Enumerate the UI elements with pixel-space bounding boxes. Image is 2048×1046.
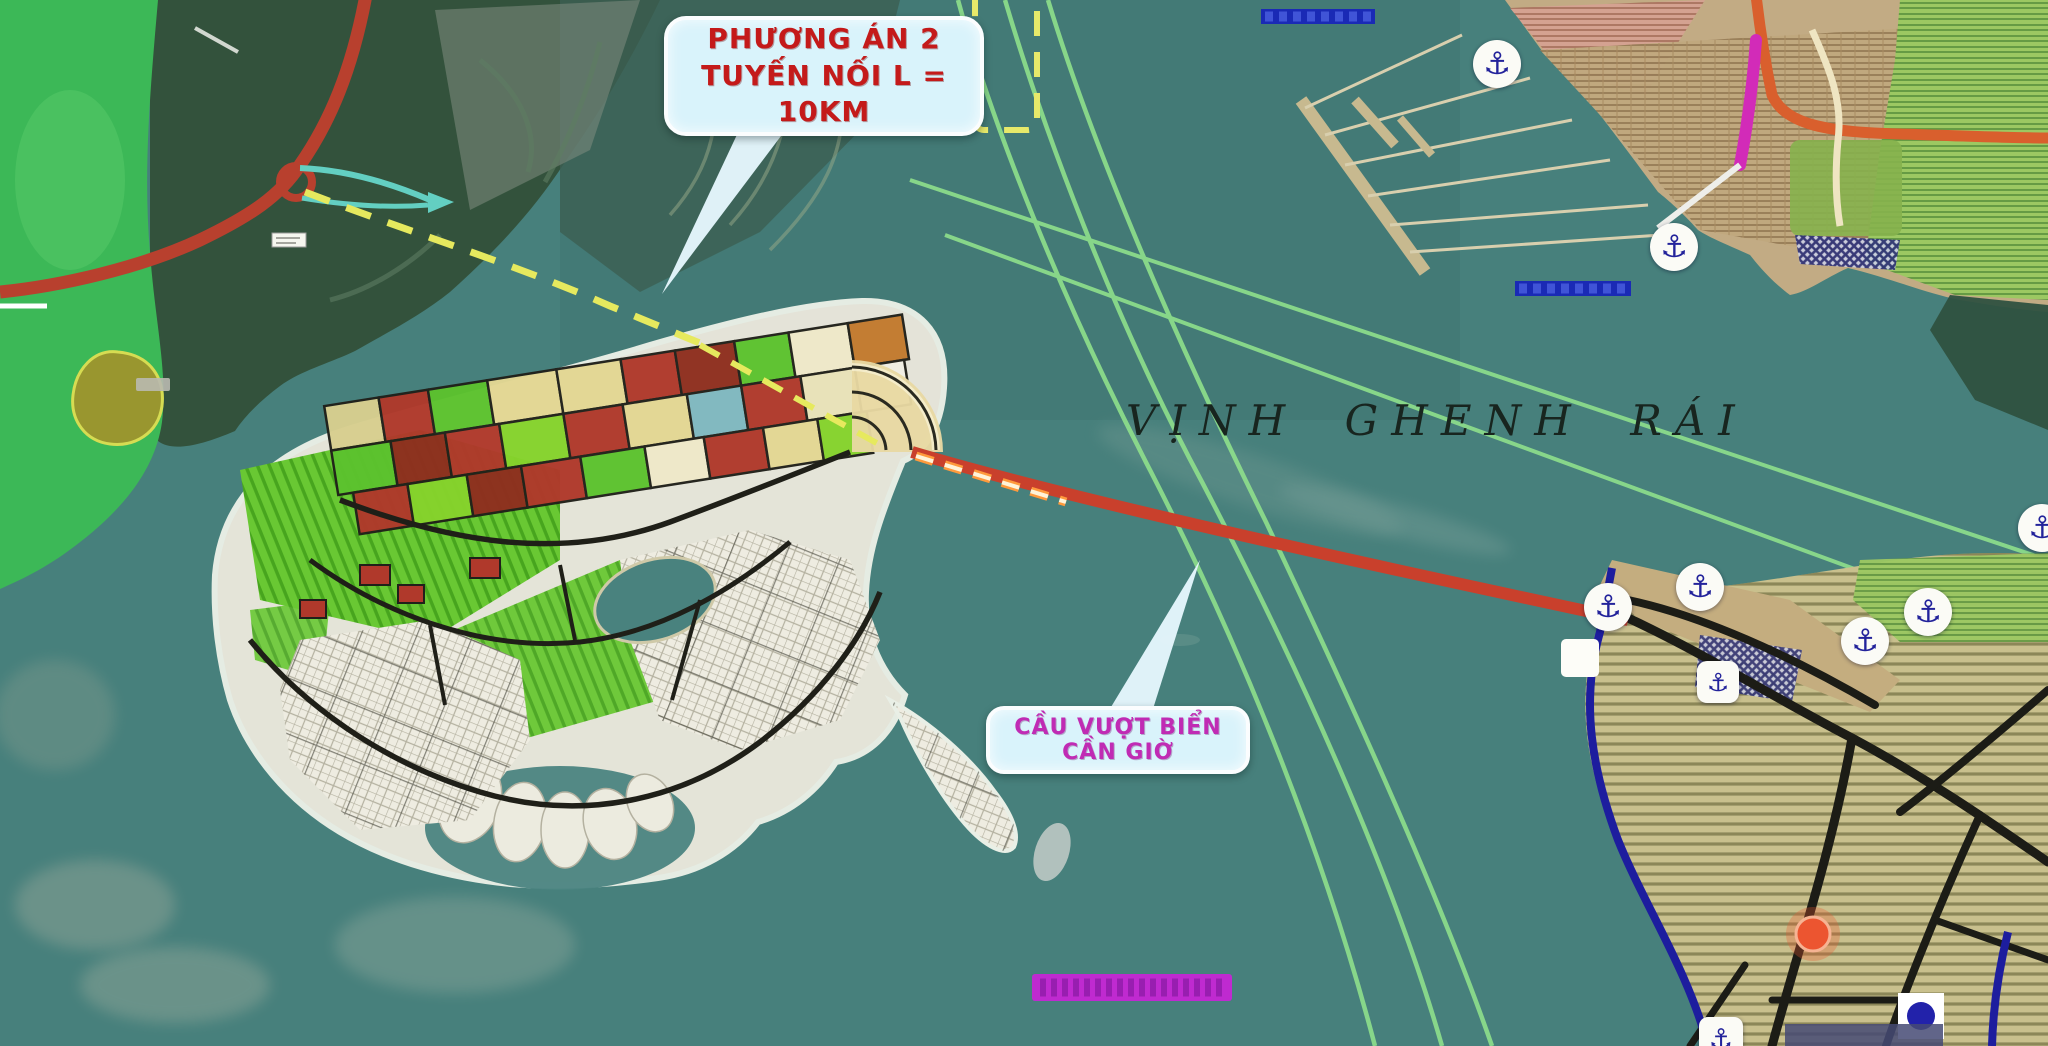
- blurred-label: [1785, 1024, 1943, 1046]
- map-graphics: [0, 0, 2048, 1046]
- callout-option2-line2: TUYẾN NỐI L = 10KM: [668, 58, 980, 132]
- anchor-icon: ⚓: [1697, 661, 1739, 703]
- anchor-icon: ⚓: [1841, 617, 1889, 665]
- anchor-icon: ⚓: [1904, 588, 1952, 636]
- golf-course-zone: [73, 352, 163, 445]
- blue-bar-top: [1261, 9, 1375, 24]
- small-map-label: [136, 378, 170, 391]
- anchor-icon: ⚓: [1676, 563, 1724, 611]
- callout-option2-line1: PHƯƠNG ÁN 2: [707, 21, 940, 58]
- anchor-icon: ⚓: [1473, 40, 1521, 88]
- anchor-icon: ⚓: [1584, 583, 1632, 631]
- callout-option2: PHƯƠNG ÁN 2 TUYẾN NỐI L = 10KM: [664, 16, 984, 136]
- blue-bar-right: [1515, 281, 1631, 296]
- red-glow-dot: [1786, 907, 1840, 961]
- planning-map: VỊNH GHENH RÁI PHƯƠNG ÁN 2 TUYẾN NỐI L =…: [0, 0, 2048, 1046]
- callout-bridge: CẦU VƯỢT BIỂN CẦN GIỜ: [986, 706, 1250, 774]
- road-sign: [272, 233, 306, 247]
- callout-bridge-label: CẦU VƯỢT BIỂN CẦN GIỜ: [990, 715, 1246, 765]
- bay-name-label: VỊNH GHENH RÁI: [1126, 396, 1666, 445]
- anchor-icon: ⚓: [1699, 1017, 1743, 1046]
- white-square-marker: [1561, 639, 1599, 677]
- anchor-icon: ⚓: [1650, 223, 1698, 271]
